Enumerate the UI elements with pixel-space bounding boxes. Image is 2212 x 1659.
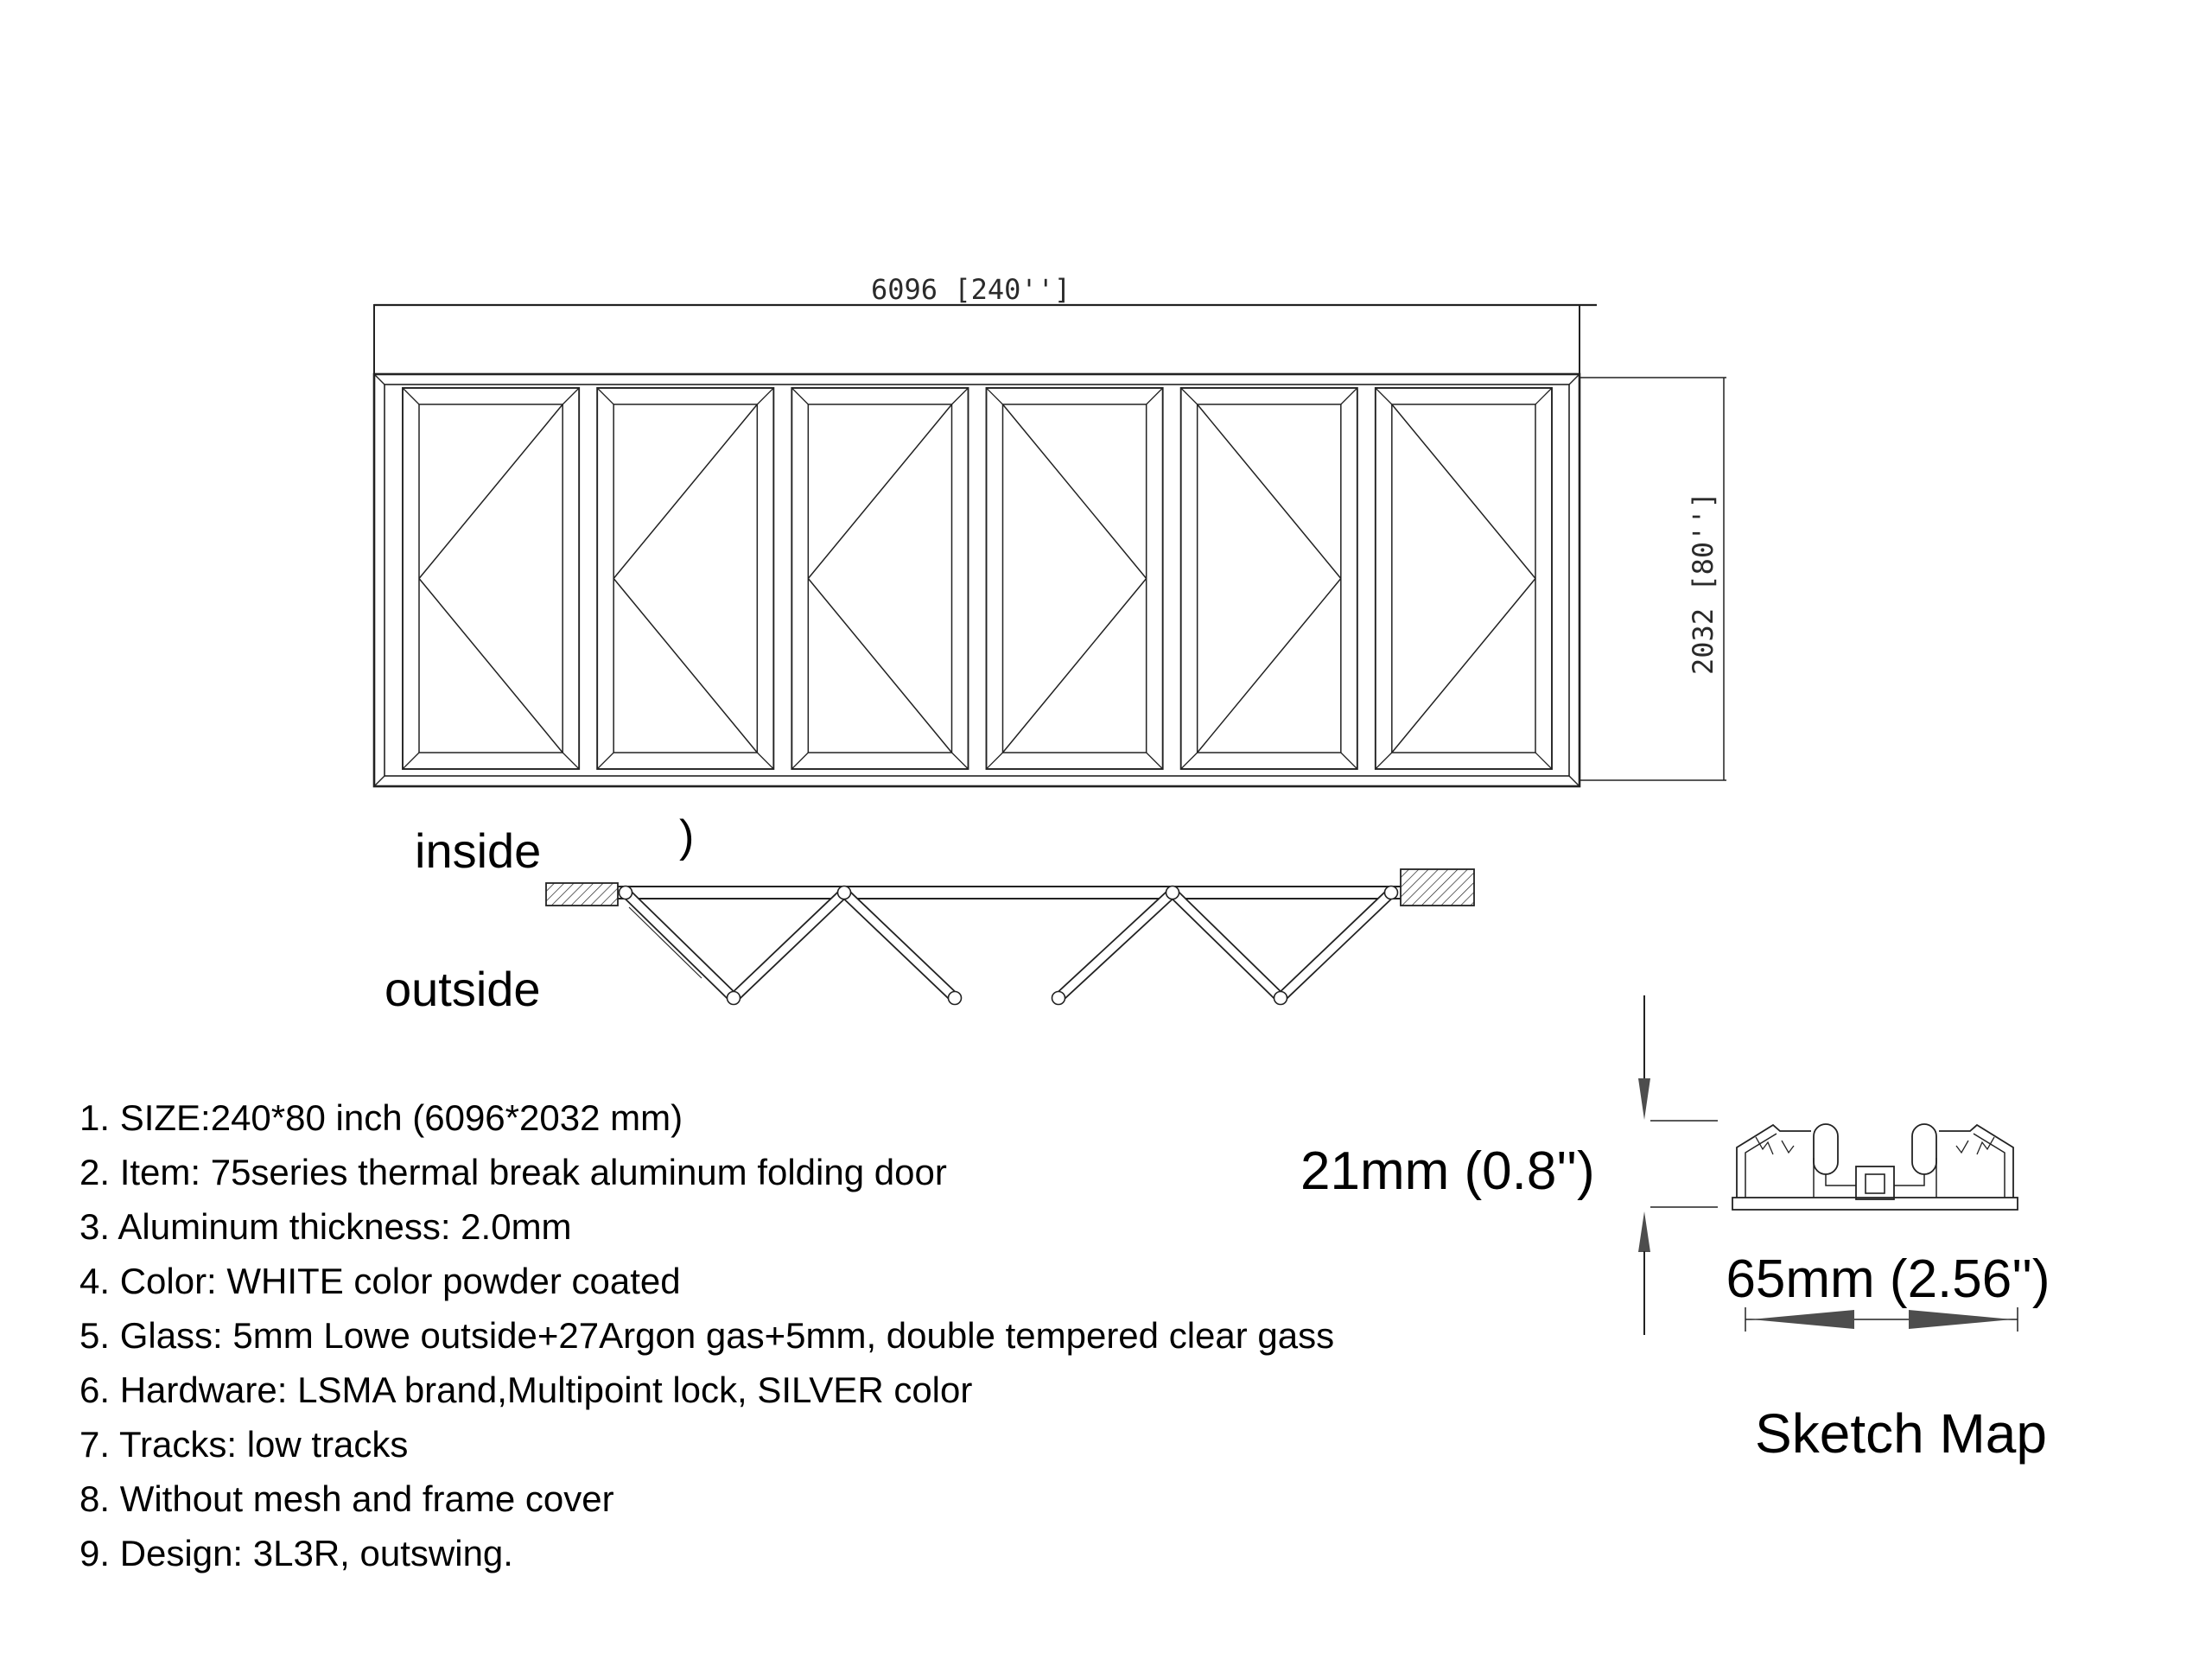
sketch-map-caption: Sketch Map [1741,1402,2061,1465]
drawing-sheet: 6096 [240''] 2032 [80''] inside ) outsid… [0,0,2212,1659]
width-dimension-label: 6096 [240''] [871,273,1071,306]
profile-height-label: 21mm (0.8'') [1300,1141,1595,1202]
height-dimension-label: 2032 [80''] [1687,480,1721,687]
profile-width-label: 65mm (2.56'') [1715,1249,2061,1310]
spec-list: 1. SIZE:240*80 inch (6096*2032 mm) 2. It… [79,1090,1334,1580]
inside-label: inside [415,823,541,879]
spec-line: 4. Color: WHITE color powder coated [79,1254,1334,1308]
spec-line: 7. Tracks: low tracks [79,1417,1334,1471]
brace-mark: ) [679,810,694,862]
spec-line: 9. Design: 3L3R, outswing. [79,1526,1334,1580]
spec-line: 2. Item: 75series thermal break aluminum… [79,1145,1334,1199]
spec-line: 6. Hardware: LSMA brand,Multipoint lock,… [79,1363,1334,1417]
spec-line: 1. SIZE:240*80 inch (6096*2032 mm) [79,1090,1334,1145]
spec-line: 5. Glass: 5mm Lowe outside+27Argon gas+5… [79,1308,1334,1363]
spec-line: 8. Without mesh and frame cover [79,1471,1334,1526]
outside-label: outside [385,961,541,1017]
spec-line: 3. Aluminum thickness: 2.0mm [79,1199,1334,1254]
